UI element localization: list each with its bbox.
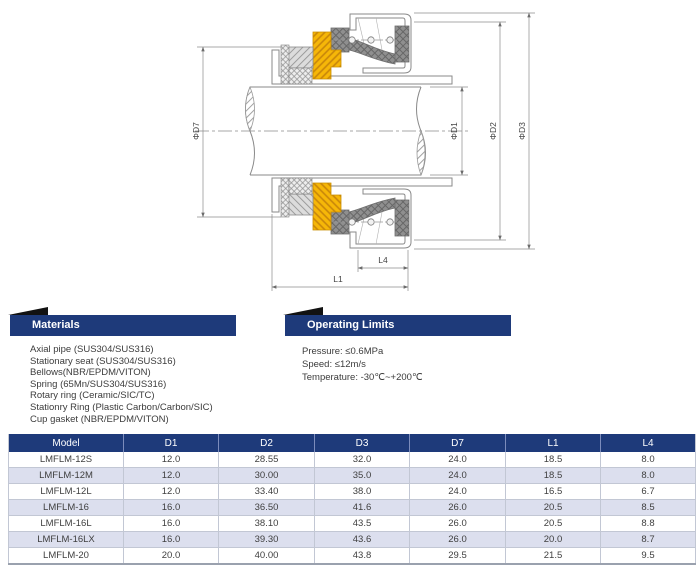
materials-title: Materials — [32, 319, 80, 331]
dim-label-d1: ΦD1 — [449, 122, 459, 140]
value-cell: 35.0 — [315, 468, 410, 484]
table-row: LMFLM-2020.040.0043.829.521.59.5 — [9, 548, 696, 565]
value-cell: 9.5 — [601, 548, 696, 565]
value-cell: 8.5 — [601, 500, 696, 516]
value-cell: 41.6 — [315, 500, 410, 516]
value-cell: 20.5 — [506, 500, 601, 516]
table-column-header: D1 — [124, 434, 219, 452]
value-cell: 26.0 — [410, 516, 506, 532]
bellows — [331, 26, 409, 64]
materials-item: Stationry Ring (Plastic Carbon/Carbon/SI… — [30, 402, 213, 414]
value-cell: 16.5 — [506, 484, 601, 500]
value-cell: 6.7 — [601, 484, 696, 500]
model-cell: LMFLM-20 — [9, 548, 124, 565]
materials-list: Axial pipe (SUS304/SUS316)Stationary sea… — [30, 344, 213, 425]
value-cell: 8.0 — [601, 468, 696, 484]
value-cell: 12.0 — [124, 484, 219, 500]
model-cell: LMFLM-16LX — [9, 532, 124, 548]
value-cell: 8.0 — [601, 452, 696, 468]
value-cell: 16.0 — [124, 516, 219, 532]
table-column-header: L4 — [601, 434, 696, 452]
table-row: LMFLM-16LX16.039.3043.626.020.08.7 — [9, 532, 696, 548]
seal-assembly-top — [272, 14, 452, 84]
seal-cross-section-diagram: ΦD7 ΦD1 ΦD2 ΦD3 L4 L1 — [0, 0, 700, 305]
table-column-header: D2 — [219, 434, 315, 452]
value-cell: 20.0 — [506, 532, 601, 548]
value-cell: 43.6 — [315, 532, 410, 548]
value-cell: 24.0 — [410, 484, 506, 500]
dim-label-l4: L4 — [378, 255, 388, 265]
value-cell: 39.30 — [219, 532, 315, 548]
value-cell: 26.0 — [410, 532, 506, 548]
operating-limit-item: Pressure: ≤0.6MPa — [302, 345, 423, 358]
value-cell: 26.0 — [410, 500, 506, 516]
materials-item: Axial pipe (SUS304/SUS316) — [30, 344, 213, 356]
model-cell: LMFLM-16 — [9, 500, 124, 516]
value-cell: 40.00 — [219, 548, 315, 565]
table-column-header: Model — [9, 434, 124, 452]
value-cell: 12.0 — [124, 468, 219, 484]
dim-label-d7: ΦD7 — [191, 122, 201, 140]
value-cell: 38.0 — [315, 484, 410, 500]
value-cell: 33.40 — [219, 484, 315, 500]
value-cell: 43.5 — [315, 516, 410, 532]
value-cell: 16.0 — [124, 500, 219, 516]
table-column-header: L1 — [506, 434, 601, 452]
table-column-header: D3 — [315, 434, 410, 452]
materials-item: Stationary seat (SUS304/SUS316) — [30, 356, 213, 368]
value-cell: 8.7 — [601, 532, 696, 548]
dim-label-d2: ΦD2 — [488, 122, 498, 140]
value-cell: 18.5 — [506, 452, 601, 468]
dim-label-d3: ΦD3 — [517, 122, 527, 140]
materials-item: Spring (65Mn/SUS304/SUS316) — [30, 379, 213, 391]
materials-item: Cup gasket (NBR/EPDM/VITON) — [30, 414, 213, 426]
value-cell: 28.55 — [219, 452, 315, 468]
value-cell: 24.0 — [410, 468, 506, 484]
model-cell: LMFLM-12L — [9, 484, 124, 500]
materials-item: Bellows(NBR/EPDM/VITON) — [30, 367, 213, 379]
value-cell: 24.0 — [410, 452, 506, 468]
materials-item: Rotary ring (Ceramic/SIC/TC) — [30, 390, 213, 402]
table-row: LMFLM-12L12.033.4038.024.016.56.7 — [9, 484, 696, 500]
model-cell: LMFLM-16L — [9, 516, 124, 532]
table-header-row: ModelD1D2D3D7L1L4 — [9, 434, 696, 452]
value-cell: 29.5 — [410, 548, 506, 565]
operating-limits-title: Operating Limits — [307, 319, 394, 331]
table-body: LMFLM-12S12.028.5532.024.018.58.0LMFLM-1… — [9, 452, 696, 564]
value-cell: 32.0 — [315, 452, 410, 468]
value-cell: 36.50 — [219, 500, 315, 516]
seal-assembly-bottom — [272, 178, 452, 248]
stationary-ring — [288, 47, 313, 68]
materials-header: Materials — [10, 315, 236, 336]
ribbon-corner-icon — [8, 307, 48, 315]
table-column-header: D7 — [410, 434, 506, 452]
value-cell: 20.0 — [124, 548, 219, 565]
table-row: LMFLM-12M12.030.0035.024.018.58.0 — [9, 468, 696, 484]
table-row: LMFLM-12S12.028.5532.024.018.58.0 — [9, 452, 696, 468]
value-cell: 20.5 — [506, 516, 601, 532]
operating-limits-list: Pressure: ≤0.6MPaSpeed: ≤12m/sTemperatur… — [302, 345, 423, 384]
operating-limits-header: Operating Limits — [285, 315, 511, 336]
model-cell: LMFLM-12M — [9, 468, 124, 484]
value-cell: 21.5 — [506, 548, 601, 565]
ribbon-corner-icon — [283, 307, 323, 315]
value-cell: 43.8 — [315, 548, 410, 565]
value-cell: 18.5 — [506, 468, 601, 484]
model-cell: LMFLM-12S — [9, 452, 124, 468]
value-cell: 38.10 — [219, 516, 315, 532]
operating-limit-item: Temperature: -30℃~+200℃ — [302, 371, 423, 384]
operating-limit-item: Speed: ≤12m/s — [302, 358, 423, 371]
value-cell: 8.8 — [601, 516, 696, 532]
value-cell: 16.0 — [124, 532, 219, 548]
dimensions-table: ModelD1D2D3D7L1L4 LMFLM-12S12.028.5532.0… — [8, 434, 696, 565]
dim-label-l1: L1 — [333, 274, 343, 284]
table-row: LMFLM-16L16.038.1043.526.020.58.8 — [9, 516, 696, 532]
value-cell: 12.0 — [124, 452, 219, 468]
table-row: LMFLM-1616.036.5041.626.020.58.5 — [9, 500, 696, 516]
value-cell: 30.00 — [219, 468, 315, 484]
